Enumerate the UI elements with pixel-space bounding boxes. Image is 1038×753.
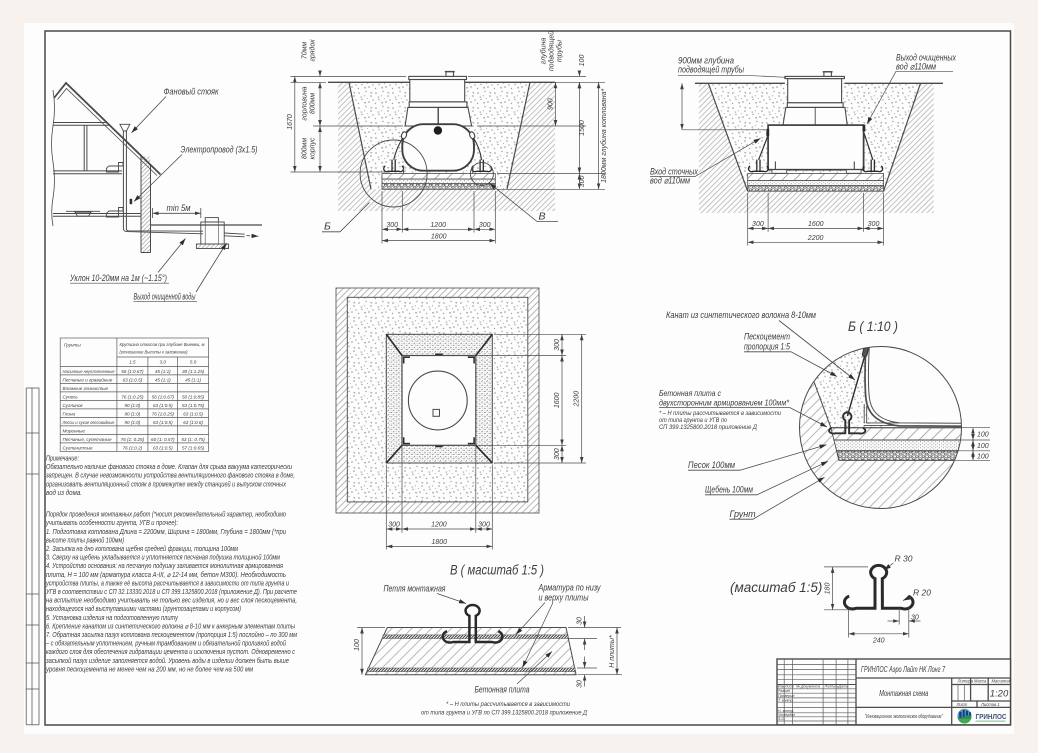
svg-text:горловина: горловина: [302, 86, 309, 120]
svg-text:Лессы и сухие лессовидные: Лессы и сухие лессовидные: [62, 420, 115, 425]
svg-text:800мм: 800мм: [310, 93, 317, 114]
svg-text:Песчаные и гравийные: Песчаные и гравийные: [63, 376, 113, 382]
svg-text:двухсторонним армированием 100: двухсторонним армированием 100мм*: [659, 398, 790, 408]
svg-text:56 (1:0.67): 56 (1:0.67): [121, 369, 144, 374]
svg-text:Т. контр.: Т. контр.: [778, 698, 794, 702]
svg-text:пропорция 1:5: пропорция 1:5: [744, 342, 791, 352]
svg-text:Суглинистые: Суглинистые: [63, 445, 94, 450]
svg-text:от типа грунта и УГВ по СП 399: от типа грунта и УГВ по СП 399.1325800.2…: [421, 710, 587, 717]
svg-text:57 (1:0.65): 57 (1:0.65): [182, 445, 205, 450]
svg-text:Б: Б: [324, 221, 331, 233]
svg-text:Влажные глинистые: Влажные глинистые: [63, 386, 109, 391]
svg-text:подводящей трубы: подводящей трубы: [678, 65, 744, 75]
svg-text:45 (1:1): 45 (1:1): [155, 369, 171, 374]
svg-text:Масштаб: Масштаб: [992, 679, 1012, 684]
svg-text:56 (1:0.67): 56 (1:0.67): [152, 394, 175, 399]
svg-text:Разраб.: Разраб.: [778, 689, 791, 693]
svg-text:100: 100: [579, 55, 586, 67]
svg-text:1600: 1600: [554, 393, 561, 409]
svg-text:30: 30: [911, 615, 919, 622]
svg-text:Песок 100мм: Песок 100мм: [688, 460, 735, 470]
svg-text:плита, Н = 100 мм (арматура кл: плита, Н = 100 мм (арматура класса А-III…: [46, 571, 286, 579]
svg-text:на всплытие необходимо учитыв: на всплытие необходимо учитывать не толь…: [46, 597, 297, 605]
svg-text:Щебень 100мм: Щебень 100мм: [705, 485, 753, 495]
svg-text:Б ( 1:10 ): Б ( 1:10 ): [848, 318, 898, 334]
svg-text:ГРИНЛОС Аэро Лайт НК Лонг 7: ГРИНЛОС Аэро Лайт НК Лонг 7: [861, 665, 945, 674]
svg-text:Выход очищенной воды: Выход очищенной воды: [134, 292, 196, 302]
svg-text:900: 900: [548, 98, 555, 110]
svg-text:запрещен. В случае невозможнос: запрещен. В случае невозможности устройс…: [45, 472, 295, 480]
svg-text:1800: 1800: [431, 233, 447, 240]
svg-text:1. Подготовка котлована Длина: 1. Подготовка котлована Длина = 2200мм, …: [46, 528, 286, 536]
svg-text:Лист: Лист: [956, 702, 968, 707]
svg-text:Песчаные, супесчаные: Песчаные, супесчаные: [63, 437, 112, 442]
svg-text:Пескоцемент: Пескоцемент: [744, 332, 790, 342]
svg-text:Монтажная схема: Монтажная схема: [879, 689, 928, 698]
svg-text:находящегося над выступавшими: находящегося над выступавшими частями (г…: [46, 605, 241, 613]
svg-text:90 (1:0): 90 (1:0): [124, 420, 140, 425]
svg-text:63 (1:0.5): 63 (1:0.5): [153, 403, 173, 408]
svg-text:1200: 1200: [430, 222, 446, 229]
svg-text:4. Устройство основания: на пе: 4. Устройство основания: на песчаную под…: [46, 562, 283, 570]
svg-text:организовать вентиляционный ст: организовать вентиляционный стояк в пром…: [46, 480, 286, 488]
svg-text:5. Установка изделия на подгот: 5. Установка изделия на подготовленную п…: [46, 614, 178, 622]
svg-text:7. Обратная засыпка пазух котл: 7. Обратная засыпка пазух котлована песк…: [46, 631, 297, 639]
svg-text:каждого слоя для обеспечения г: каждого слоя для обеспечения гидратации …: [46, 648, 295, 656]
svg-text:300: 300: [554, 339, 561, 351]
svg-text:R 30: R 30: [895, 554, 913, 564]
svg-text:Лист: Лист: [784, 685, 794, 689]
svg-text:№ Документа: № Документа: [796, 685, 820, 689]
svg-text:Моренные: Моренные: [63, 428, 86, 433]
svg-text:76 (1:0.2): 76 (1:0.2): [123, 445, 143, 450]
svg-text:1.5: 1.5: [129, 360, 136, 365]
svg-text:45 (1:1): 45 (1:1): [155, 377, 171, 382]
svg-text:Подпись: Подпись: [825, 685, 839, 689]
svg-text:2200: 2200: [807, 235, 824, 242]
svg-text:60 (1: 0.57): 60 (1: 0.57): [151, 437, 175, 442]
svg-text:100: 100: [354, 639, 361, 651]
svg-text:Обязательно наличие фанового с: Обязательно наличие фанового стояка в до…: [46, 463, 292, 471]
svg-text:300: 300: [386, 222, 398, 229]
svg-text:(отношение Высоты к заложению): (отношение Высоты к заложению): [120, 350, 188, 355]
svg-text:от типа грунта и УГВ по: от типа грунта и УГВ по: [659, 418, 728, 424]
svg-text:53 (1: 0.75): 53 (1: 0.75): [181, 437, 205, 442]
svg-text:В ( масштаб 1:5 ): В ( масштаб 1:5 ): [450, 563, 544, 578]
svg-text:5.0: 5.0: [190, 360, 197, 365]
svg-text:Крутизна откосов при глубине В: Крутизна откосов при глубине Выемки, м: [120, 342, 206, 347]
svg-text:1600: 1600: [808, 221, 824, 228]
svg-text:вод из дома.: вод из дома.: [46, 489, 82, 497]
svg-text:Уклон 10-20мм на 1м (~1.15°): Уклон 10-20мм на 1м (~1.15°): [69, 273, 167, 283]
svg-text:63 (1:0.5): 63 (1:0.5): [153, 445, 173, 450]
svg-text:76 (1:0.25): 76 (1:0.25): [121, 394, 144, 399]
svg-text:уровня пескоцемента не менее ч: уровня пескоцемента не менее чем на 200 …: [45, 665, 253, 673]
svg-text:1200: 1200: [431, 522, 447, 529]
svg-text:53 (1:0.75): 53 (1:0.75): [182, 403, 205, 408]
svg-text:и верху плиты: и верху плиты: [539, 593, 589, 603]
svg-text:100: 100: [977, 443, 989, 450]
svg-text:70мм: 70мм: [302, 42, 309, 60]
svg-text:СП 399.1325800.2018 приложение: СП 399.1325800.2018 приложение Д: [659, 425, 758, 431]
svg-text:R 20: R 20: [913, 588, 931, 598]
svg-text:Изм: Изм: [778, 685, 785, 689]
svg-text:Фановый стояк: Фановый стояк: [164, 87, 220, 97]
svg-text:Суглинок: Суглинок: [63, 403, 84, 408]
svg-text:1670: 1670: [287, 114, 294, 130]
svg-text:min 5м: min 5м: [167, 203, 191, 213]
svg-text:63 (1:0.5): 63 (1:0.5): [183, 411, 203, 416]
svg-text:Примечание:: Примечание:: [46, 455, 79, 462]
svg-text:устройства плиты, а также её в: устройства плиты, а также её высота расс…: [45, 579, 289, 587]
svg-text:3. Сверху на щебень укладывает: 3. Сверху на щебень укладывается и уплот…: [46, 554, 280, 562]
svg-text:76 (1:0.25): 76 (1:0.25): [152, 411, 175, 416]
svg-text:* – Н плиты рассчитывается в з: * – Н плиты рассчитывается в зависимости: [446, 701, 570, 708]
svg-text:300: 300: [478, 522, 490, 529]
svg-text:– с обязательным уплотнением,: – с обязательным уплотнением, ручным тра…: [45, 640, 286, 648]
svg-text:30: 30: [577, 617, 584, 625]
svg-text:100: 100: [977, 454, 989, 461]
svg-text:Глина: Глина: [63, 411, 76, 416]
svg-text:38 (1:1.25): 38 (1:1.25): [182, 369, 205, 374]
svg-text:Арматура по низу: Арматура по низу: [538, 583, 601, 593]
svg-text:Петля монтажная: Петля монтажная: [384, 584, 446, 594]
svg-text:180: 180: [824, 583, 831, 595]
svg-text:76 (1: 0.25): 76 (1: 0.25): [121, 437, 145, 442]
svg-text:подводящей: подводящей: [548, 31, 556, 71]
svg-text:высоте плиты равной 100мм): высоте плиты равной 100мм): [46, 536, 124, 544]
svg-text:Порядок проведения монтажных р: Порядок проведения монтажных работ (*нос…: [46, 511, 286, 519]
svg-text:63 (1:0.6): 63 (1:0.6): [183, 420, 203, 425]
svg-text:300: 300: [479, 222, 491, 229]
svg-text:1500: 1500: [579, 120, 586, 136]
svg-text:засыпкой пазух изделие заполня: засыпкой пазух изделие заполняется водой…: [45, 657, 289, 665]
svg-text:30: 30: [577, 680, 584, 688]
svg-text:Проверил: Проверил: [778, 694, 794, 698]
svg-text:Листов 1: Листов 1: [980, 702, 1000, 707]
svg-text:300: 300: [868, 221, 880, 228]
svg-text:"Инновационное экологическое о: "Инновационное экологическое оборудовани…: [865, 714, 943, 720]
svg-text:63 (1:0.5): 63 (1:0.5): [153, 420, 173, 425]
svg-text:50 (1:0.85): 50 (1:0.85): [182, 394, 205, 399]
svg-text:вод ⌀110мм: вод ⌀110мм: [650, 176, 690, 186]
svg-text:УГВ в соответствии с СП 32.133: УГВ в соответствии с СП 32.13330.2018 и …: [45, 589, 297, 596]
svg-text:Насыпные неуплотненные: Насыпные неуплотненные: [63, 369, 115, 374]
svg-text:Н плиты*: Н плиты*: [609, 635, 616, 668]
svg-text:S.O.: S.O.: [778, 717, 785, 721]
svg-text:90 (1:0): 90 (1:0): [124, 411, 140, 416]
svg-text:вод ⌀110мм: вод ⌀110мм: [896, 62, 936, 72]
svg-text:Дата: Дата: [838, 685, 848, 689]
svg-text:Грунт: Грунт: [730, 509, 757, 519]
svg-text:300: 300: [579, 175, 586, 187]
svg-text:2200: 2200: [574, 391, 581, 408]
svg-text:800мм: 800мм: [302, 138, 309, 159]
svg-text:1:20: 1:20: [990, 689, 1009, 700]
svg-text:глубина: глубина: [540, 38, 548, 65]
svg-text:ГРИНЛОС: ГРИНЛОС: [976, 712, 1007, 721]
svg-text:90 (1:0): 90 (1:0): [124, 403, 140, 408]
svg-text:3.0: 3.0: [160, 360, 167, 365]
svg-text:Бетонная плита: Бетонная плита: [475, 685, 530, 695]
svg-text:1800: 1800: [432, 539, 448, 546]
svg-text:63 (1:0.5): 63 (1:0.5): [123, 377, 143, 382]
svg-text:Литера: Литера: [957, 679, 974, 684]
svg-text:корпус: корпус: [310, 137, 317, 159]
svg-text:Электропровод (3х1.5): Электропровод (3х1.5): [181, 145, 258, 155]
svg-text:(масштаб 1:5): (масштаб 1:5): [730, 580, 822, 595]
svg-text:2. Засыпка на дно котлована ще: 2. Засыпка на дно котлована щебня средне…: [45, 545, 238, 553]
svg-text:учитывать особенности грунта,: учитывать особенности грунта, УГВ и проч…: [45, 519, 178, 527]
svg-text:* – Н плиты рассчитывается в з: * – Н плиты рассчитывается в зависимости: [659, 411, 782, 417]
svg-text:Канат из синтетического волокн: Канат из синтетического волокна 8-10мм: [666, 310, 816, 320]
svg-text:грядок: грядок: [309, 39, 317, 62]
svg-text:100: 100: [977, 432, 989, 439]
svg-text:300: 300: [752, 221, 764, 228]
svg-text:Супесь: Супесь: [63, 394, 79, 399]
svg-text:300: 300: [388, 522, 400, 529]
svg-text:240: 240: [872, 638, 885, 645]
svg-text:Грунты: Грунты: [64, 343, 81, 348]
svg-text:трубы: трубы: [556, 39, 564, 62]
svg-text:300: 300: [554, 448, 561, 460]
svg-text:В: В: [539, 211, 546, 223]
svg-text:Бетонная плита с: Бетонная плита с: [659, 388, 722, 398]
svg-text:Масса: Масса: [974, 679, 987, 684]
svg-text:6. Крепление канатом из синтет: 6. Крепление канатом из синтетического в…: [46, 623, 295, 630]
svg-text:1800мм глубина котлована*: 1800мм глубина котлована*: [600, 88, 608, 182]
svg-text:45 (1:1): 45 (1:1): [185, 377, 201, 382]
